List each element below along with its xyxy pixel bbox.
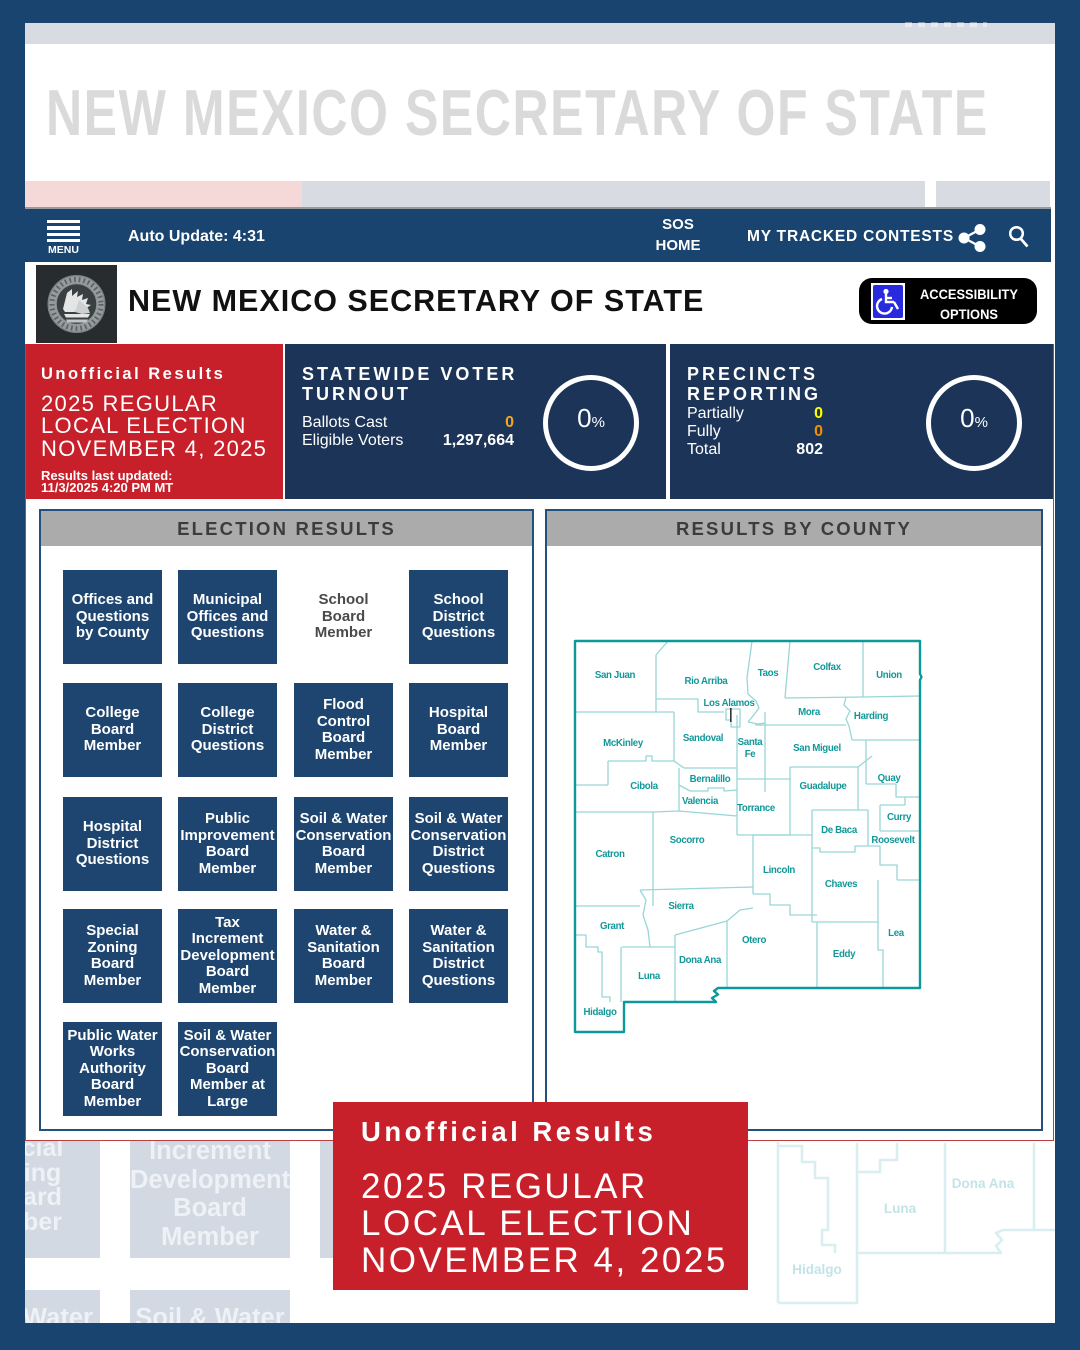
svg-text:San Juan: San Juan — [595, 670, 636, 681]
svg-text:Catron: Catron — [595, 849, 625, 860]
svg-text:Fe: Fe — [745, 749, 757, 760]
svg-text:Valencia: Valencia — [682, 796, 719, 807]
svg-text:Bernalillo: Bernalillo — [690, 774, 731, 785]
svg-text:Luna: Luna — [884, 1201, 917, 1216]
svg-text:Harding: Harding — [854, 711, 889, 722]
svg-text:Quay: Quay — [878, 773, 902, 784]
svg-text:Lincoln: Lincoln — [763, 865, 795, 876]
svg-text:Curry: Curry — [887, 812, 912, 823]
svg-text:McKinley: McKinley — [603, 738, 644, 749]
svg-text:Colfax: Colfax — [813, 662, 841, 673]
svg-text:Lea: Lea — [888, 928, 905, 939]
svg-text:Guadalupe: Guadalupe — [800, 781, 848, 792]
svg-text:Torrance: Torrance — [737, 803, 776, 814]
svg-text:Roosevelt: Roosevelt — [871, 835, 915, 846]
svg-text:Rio Arriba: Rio Arriba — [685, 676, 729, 687]
svg-text:Eddy: Eddy — [833, 949, 856, 960]
svg-text:Cibola: Cibola — [630, 781, 658, 792]
svg-text:Santa: Santa — [738, 737, 764, 748]
svg-text:Grant: Grant — [600, 921, 625, 932]
svg-text:Luna: Luna — [638, 971, 661, 982]
svg-text:Hidalgo: Hidalgo — [583, 1007, 617, 1018]
svg-text:Socorro: Socorro — [670, 835, 705, 846]
svg-text:De Baca: De Baca — [821, 825, 858, 836]
svg-text:Dona Ana: Dona Ana — [679, 955, 722, 966]
svg-text:Chaves: Chaves — [825, 879, 857, 890]
svg-text:Mora: Mora — [798, 707, 821, 718]
svg-text:Taos: Taos — [758, 668, 779, 679]
svg-text:Otero: Otero — [742, 935, 767, 946]
svg-text:Sierra: Sierra — [668, 901, 694, 912]
svg-text:Hidalgo: Hidalgo — [792, 1262, 842, 1277]
svg-text:Los Alamos: Los Alamos — [703, 698, 754, 709]
svg-text:Sandoval: Sandoval — [683, 733, 723, 744]
svg-text:San Miguel: San Miguel — [793, 743, 841, 754]
svg-text:Dona Ana: Dona Ana — [952, 1176, 1015, 1191]
svg-text:Union: Union — [876, 670, 902, 681]
